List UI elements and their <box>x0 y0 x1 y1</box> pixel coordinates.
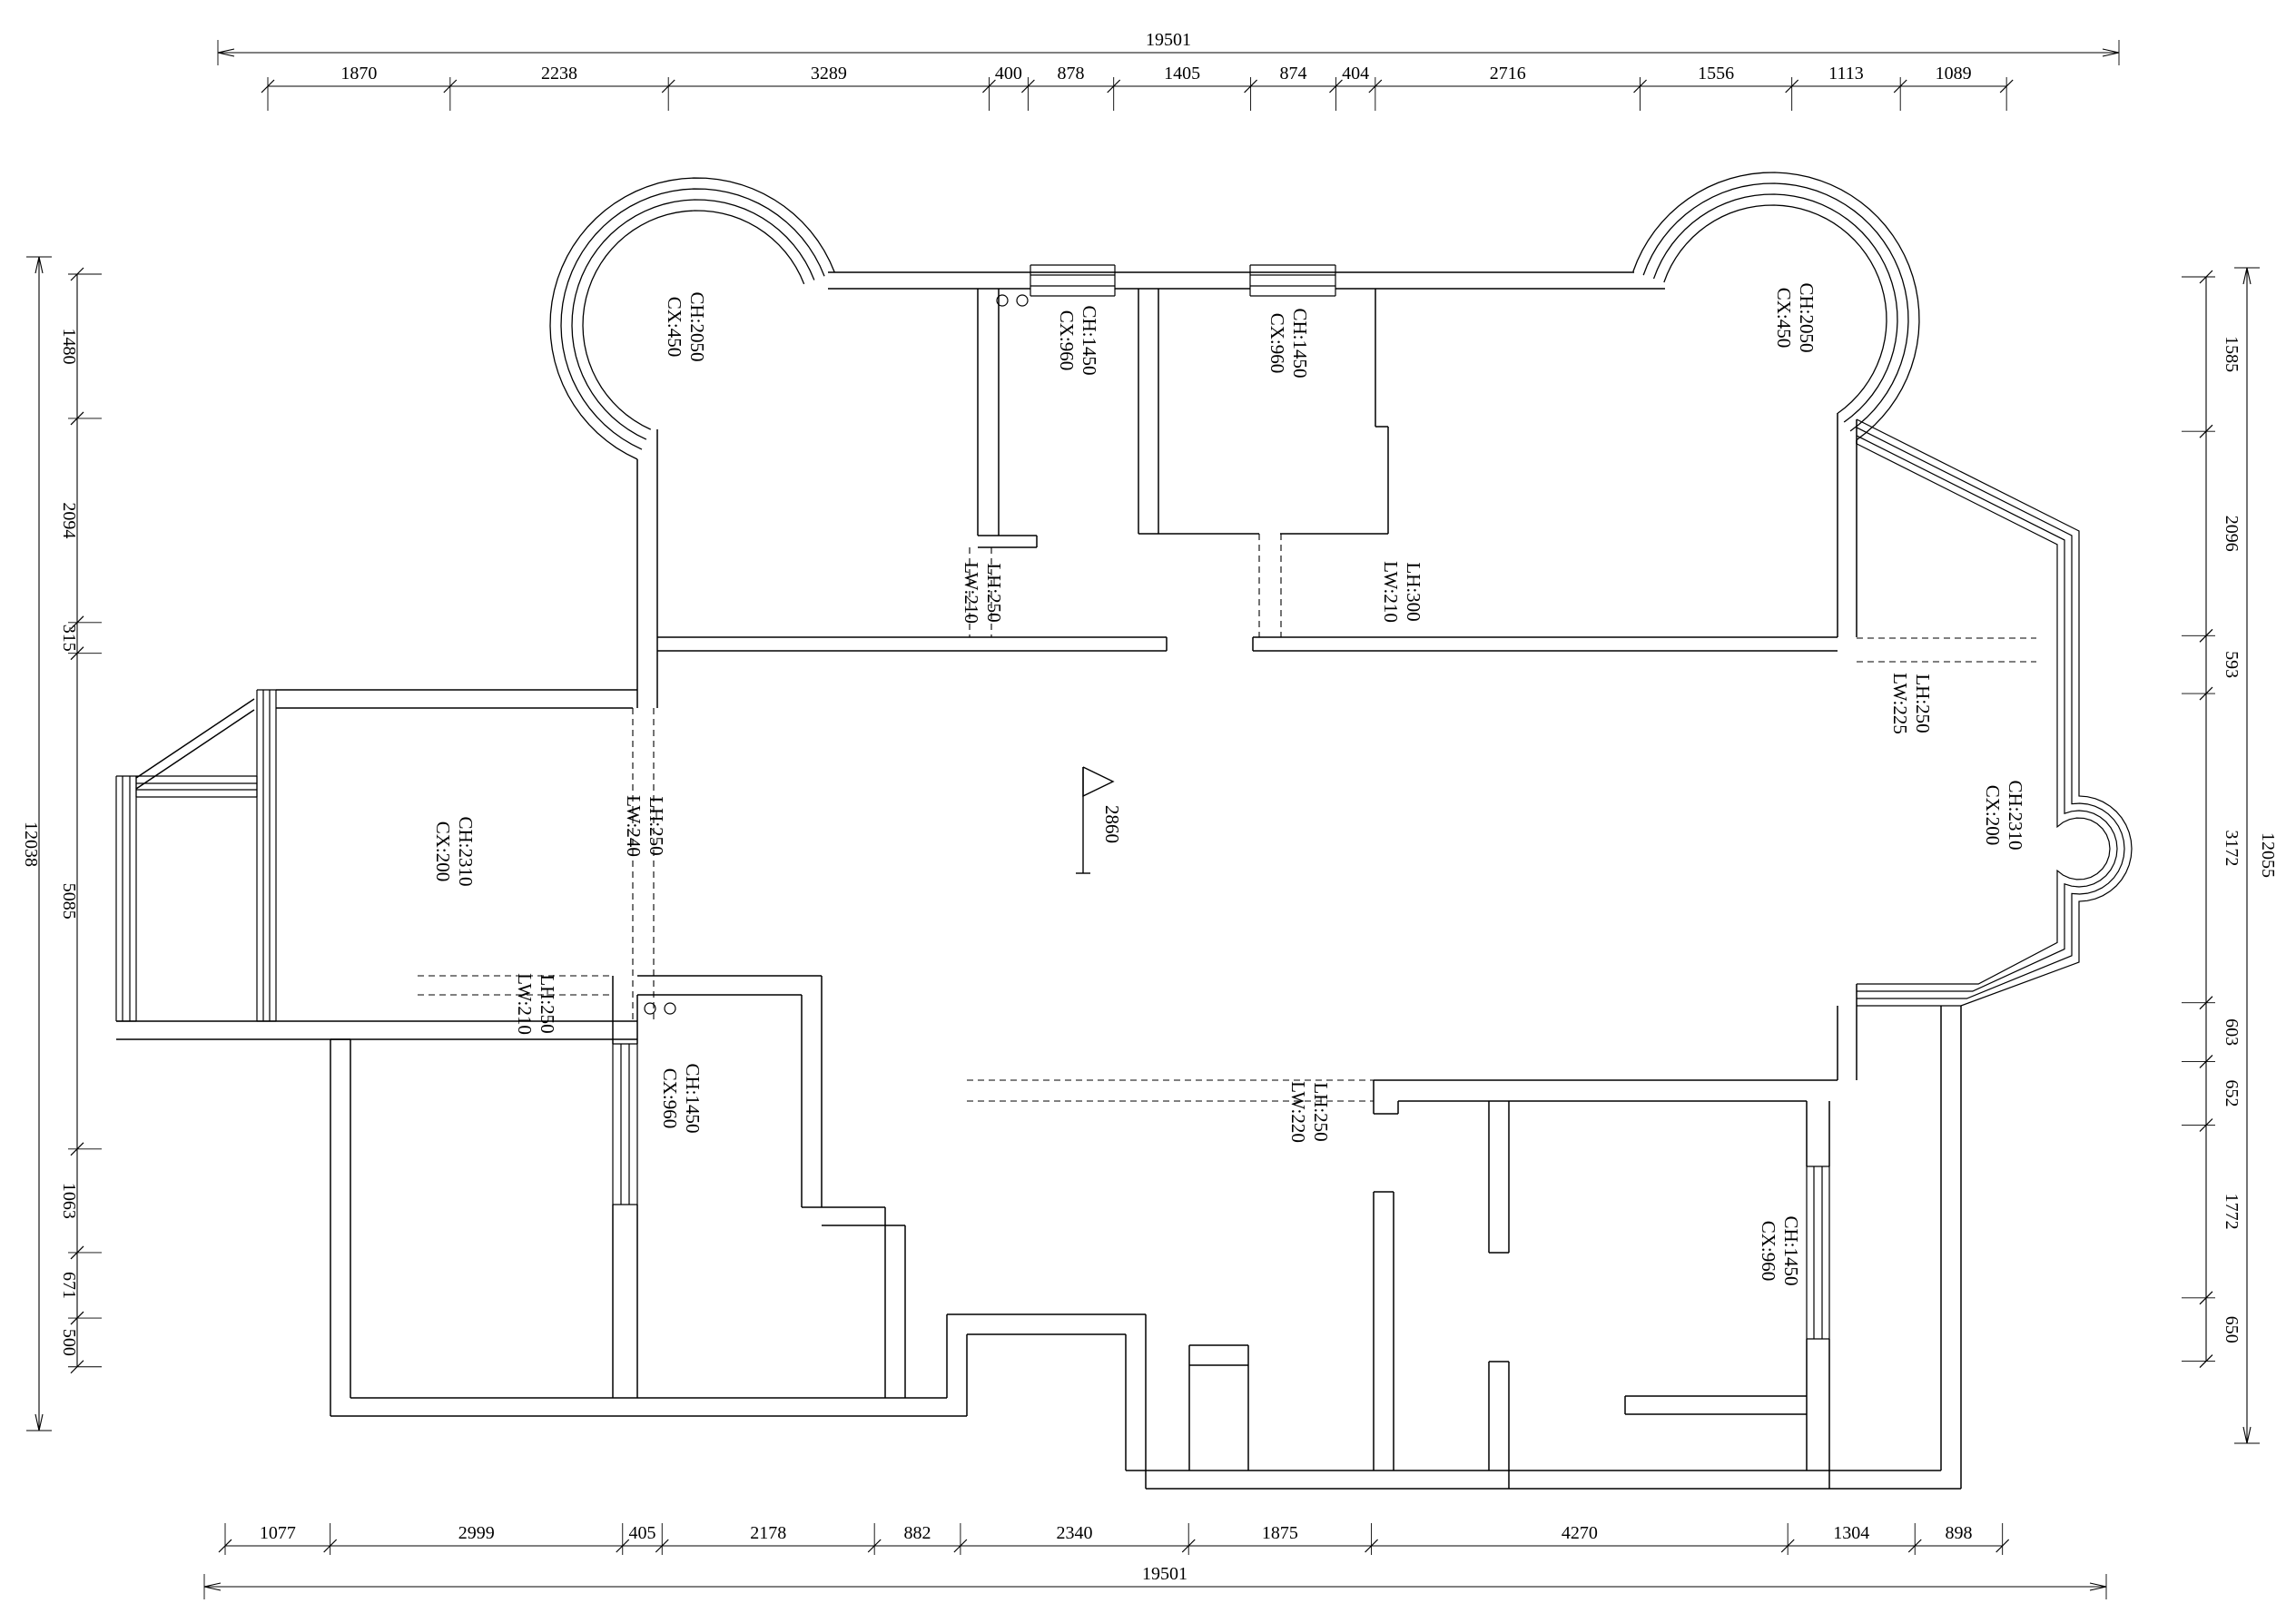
label-beam-lower-middle: LH:250LW:220 <box>1287 1081 1332 1143</box>
door-circle-icon <box>1017 295 1028 306</box>
dimension-chain-left-total: 12038 <box>21 821 41 867</box>
dimension-chain-left-segment-2: 315 <box>59 625 79 652</box>
dimension-chain-top-segment-11: 1089 <box>1936 64 1972 84</box>
beam-lower-middle-line1: LH:250 <box>1310 1082 1332 1141</box>
window-top-2-line2: CX:960 <box>1266 313 1288 374</box>
window-lower-right-room-line1: CH:1450 <box>1780 1215 1802 1285</box>
dimension-chain-left-segment-6: 500 <box>59 1329 79 1356</box>
elevation-value: 2860 <box>1101 805 1123 843</box>
dimension-chain-bottom-total: 19501 <box>1142 1564 1187 1584</box>
label-beam-living-left: LH:250LW:240 <box>623 795 667 857</box>
elevation-marker: 2860 <box>1076 767 1123 873</box>
label-window-lower-right-room: CH:1450CX:960 <box>1758 1215 1802 1285</box>
label-window-lower-left-room: CH:1450CX:960 <box>659 1063 704 1133</box>
dimension-chain-left-segment-1: 2094 <box>59 502 79 538</box>
dimension-chain-top-segment-4: 878 <box>1058 64 1085 84</box>
dimension-chain-right-segment-0: 1585 <box>2222 336 2242 372</box>
dimension-chain-right: 158520965933172603652177265012055 <box>2182 268 2278 1443</box>
dimension-chain-top-segment-7: 404 <box>1342 64 1369 84</box>
dimension-chain-left-segment-4: 1063 <box>59 1183 79 1219</box>
dimension-chain-bottom-segment-3: 2178 <box>750 1523 786 1543</box>
dimension-chain-right-segment-6: 1772 <box>2222 1194 2242 1230</box>
dimension-chain-bottom-segment-4: 882 <box>904 1523 931 1543</box>
window-lower-left-room-line1: CH:1450 <box>682 1063 704 1133</box>
dimension-chain-right-segment-7: 650 <box>2222 1316 2242 1343</box>
dimension-chain-left: 148020943155085106367150012038 <box>21 257 102 1431</box>
window-top-1-line2: CX:960 <box>1056 310 1078 371</box>
label-beam-upper-left: LH:250LW:210 <box>961 562 1005 624</box>
bay-window-top-left-line1: CH:2050 <box>686 291 708 361</box>
floorplan-svg: 2860CH:2050CX:450CH:1450CX:960CH:1450CX:… <box>0 0 2296 1623</box>
label-window-left-balcony: CH:2310CX:200 <box>432 816 477 886</box>
floorplan-canvas: 2860CH:2050CX:450CH:1450CX:960CH:1450CX:… <box>0 0 2296 1623</box>
dimension-chain-bottom-segment-5: 2340 <box>1057 1523 1093 1543</box>
dimension-chain-right-segment-4: 603 <box>2222 1018 2242 1046</box>
beam-upper-right-line2: LW:210 <box>1380 561 1402 623</box>
dimension-chain-top-segment-0: 1870 <box>340 64 377 84</box>
label-beam-right-bay: LH:250LW:225 <box>1889 673 1934 734</box>
label-bay-window-top-right: CH:2050CX:450 <box>1773 282 1818 352</box>
dimension-chain-top-segment-9: 1556 <box>1698 64 1734 84</box>
dimension-chain-bottom-segment-0: 1077 <box>260 1523 296 1543</box>
beam-right-bay-line2: LW:225 <box>1889 673 1911 734</box>
bay-window-arcs <box>550 172 1919 459</box>
window-left-balcony-line1: CH:2310 <box>455 816 477 886</box>
bay-window-top-left-line2: CX:450 <box>664 297 685 358</box>
dimension-chain-top-segment-3: 400 <box>995 64 1022 84</box>
dimension-chain-top-segment-10: 1113 <box>1828 64 1864 84</box>
beam-lower-middle-line2: LW:220 <box>1287 1081 1309 1143</box>
label-window-top-2: CH:1450CX:960 <box>1266 308 1311 378</box>
beam-upper-left-line2: LW:210 <box>961 562 982 624</box>
window-lower-left-room-line2: CX:960 <box>659 1068 681 1129</box>
dimension-chain-bottom-segment-8: 1304 <box>1833 1523 1869 1543</box>
bay-window-right-line1: CH:2310 <box>2005 780 2026 850</box>
window-top-2-line1: CH:1450 <box>1289 308 1311 378</box>
dimension-chain-top-segment-1: 2238 <box>541 64 577 84</box>
beam-upper-right-line1: LH:300 <box>1403 562 1424 621</box>
beam-right-bay-line1: LH:250 <box>1912 674 1934 733</box>
walls <box>116 272 1961 1489</box>
dimension-chain-top-segment-8: 2716 <box>1490 64 1526 84</box>
label-beam-lower-left: LH:250LW:210 <box>514 973 558 1035</box>
dimension-chain-top-segment-5: 1405 <box>1164 64 1200 84</box>
door-circles <box>645 295 1028 1014</box>
bay-window-top-right-line2: CX:450 <box>1773 288 1795 349</box>
dimension-chain-top: 1870223832894008781405874404271615561113… <box>218 30 2119 111</box>
door-circle-icon <box>665 1003 675 1014</box>
label-bay-window-right: CH:2310CX:200 <box>1982 780 2026 850</box>
window-lower-right-room-line2: CX:960 <box>1758 1221 1779 1282</box>
label-bay-window-top-left: CH:2050CX:450 <box>664 291 708 361</box>
dimension-chain-left-segment-5: 671 <box>59 1272 79 1299</box>
label-beam-upper-right: LH:300LW:210 <box>1380 561 1424 623</box>
beam-lower-left-line1: LH:250 <box>537 974 558 1033</box>
bay-window-top-right-line1: CH:2050 <box>1796 282 1818 352</box>
dimension-chain-left-segment-3: 5085 <box>59 883 79 920</box>
dimension-chain-bottom: 1077299940521788822340187542701304898195… <box>204 1523 2106 1599</box>
beam-living-left-line2: LW:240 <box>623 795 645 857</box>
dimension-chain-bottom-segment-9: 898 <box>1945 1523 1972 1543</box>
dimension-chain-top-segment-6: 874 <box>1280 64 1307 84</box>
beam-living-left-line1: LH:250 <box>645 796 667 855</box>
dimension-chain-bottom-segment-2: 405 <box>629 1523 656 1543</box>
dimension-chain-top-segment-2: 3289 <box>811 64 847 84</box>
dimension-chain-left-segment-0: 1480 <box>59 328 79 364</box>
dimension-chain-bottom-segment-1: 2999 <box>458 1523 495 1543</box>
dimension-chain-right-segment-5: 652 <box>2222 1079 2242 1107</box>
window-left-balcony-line2: CX:200 <box>432 821 454 882</box>
dimension-chain-bottom-segment-7: 4270 <box>1562 1523 1598 1543</box>
dimension-chain-top-total: 19501 <box>1146 30 1191 50</box>
dimension-chain-right-segment-3: 3172 <box>2222 830 2242 866</box>
dimension-chain-right-segment-1: 2096 <box>2222 516 2242 552</box>
beam-lower-left-line2: LW:210 <box>514 973 536 1035</box>
dimension-chain-right-total: 12055 <box>2258 832 2278 878</box>
window-top-1-line1: CH:1450 <box>1079 305 1100 375</box>
label-window-top-1: CH:1450CX:960 <box>1056 305 1100 375</box>
dimension-chain-right-segment-2: 593 <box>2222 651 2242 678</box>
window-symbols <box>116 265 1829 1339</box>
bay-window-right-line2: CX:200 <box>1982 785 2004 846</box>
dimension-chain-bottom-segment-6: 1875 <box>1262 1523 1298 1543</box>
beam-upper-left-line1: LH:250 <box>983 563 1005 622</box>
